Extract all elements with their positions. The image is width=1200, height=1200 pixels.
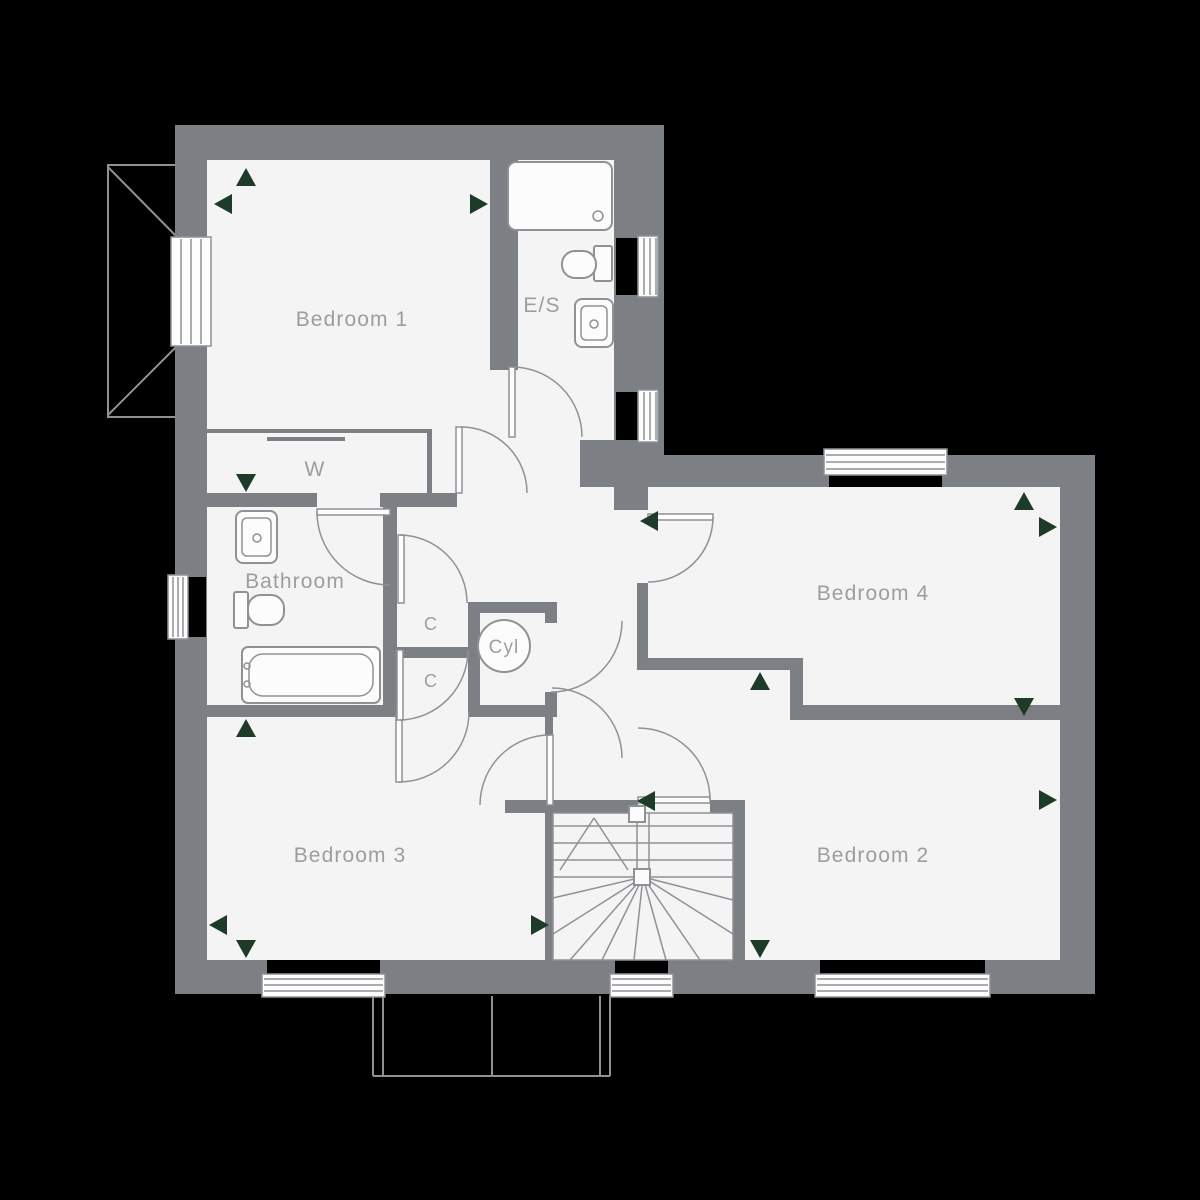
- door-leaf: [396, 712, 402, 782]
- window-bedroom4-top: [824, 449, 947, 487]
- window-bedroom1-left: [171, 237, 211, 346]
- window-frame: [638, 236, 658, 297]
- bathroom-basin: [236, 511, 277, 563]
- door-leaf: [397, 650, 403, 720]
- room-label-bedroom2: Bedroom 2: [817, 844, 930, 867]
- window-recess: [616, 238, 640, 295]
- room-label-bedroom3: Bedroom 3: [294, 844, 407, 867]
- toilet-bowl: [248, 595, 284, 625]
- shower-tray: [508, 162, 612, 230]
- window-stairs-bottom: [610, 960, 673, 997]
- door-leaf: [456, 427, 462, 493]
- room-label-cylinder: Cyl: [489, 637, 520, 658]
- bay-projection-outline: [108, 165, 177, 417]
- porch-projection-outline: [373, 996, 610, 1076]
- floorplan-drawing: Bedroom 1 E/S W Bathroom C C Cyl Bedroom…: [0, 0, 1200, 1200]
- window-frame: [638, 390, 658, 442]
- room-label-bedroom1: Bedroom 1: [296, 308, 409, 331]
- toilet-bowl: [562, 251, 596, 278]
- window-bathroom-left: [168, 575, 206, 639]
- window-ensuite-upper-right: [616, 236, 658, 297]
- bathtub: [242, 647, 380, 703]
- window-bedroom2-bottom: [815, 960, 990, 997]
- door-leaf: [509, 367, 515, 437]
- room-label-ensuite: E/S: [523, 294, 560, 317]
- room-label-cupboard-lower: C: [424, 671, 438, 691]
- bathtub-outline: [242, 647, 380, 703]
- bay-outline-diagonals: [108, 167, 177, 415]
- toilet-cistern: [234, 592, 248, 628]
- ensuite-basin: [575, 299, 613, 347]
- room-label-wardrobe: W: [305, 458, 326, 481]
- floorplan-canvas: Bedroom 1 E/S W Bathroom C C Cyl Bedroom…: [0, 0, 1200, 1200]
- door-leaf: [398, 535, 404, 603]
- shower-tray-outline: [508, 162, 612, 230]
- room-label-bathroom: Bathroom: [245, 570, 345, 593]
- window-recess: [616, 392, 640, 440]
- window-bedroom3-bottom: [262, 960, 385, 997]
- window-ensuite-lower-right: [616, 390, 658, 442]
- room-label-cupboard-upper: C: [424, 614, 438, 634]
- room-label-bedroom4: Bedroom 4: [817, 582, 930, 605]
- door-leaf: [547, 735, 553, 805]
- bathroom-toilet: [234, 592, 284, 628]
- stair-newel-post: [634, 869, 650, 885]
- ensuite-toilet: [562, 246, 612, 281]
- stair-newel-post: [629, 806, 645, 822]
- door-leaf: [317, 509, 390, 515]
